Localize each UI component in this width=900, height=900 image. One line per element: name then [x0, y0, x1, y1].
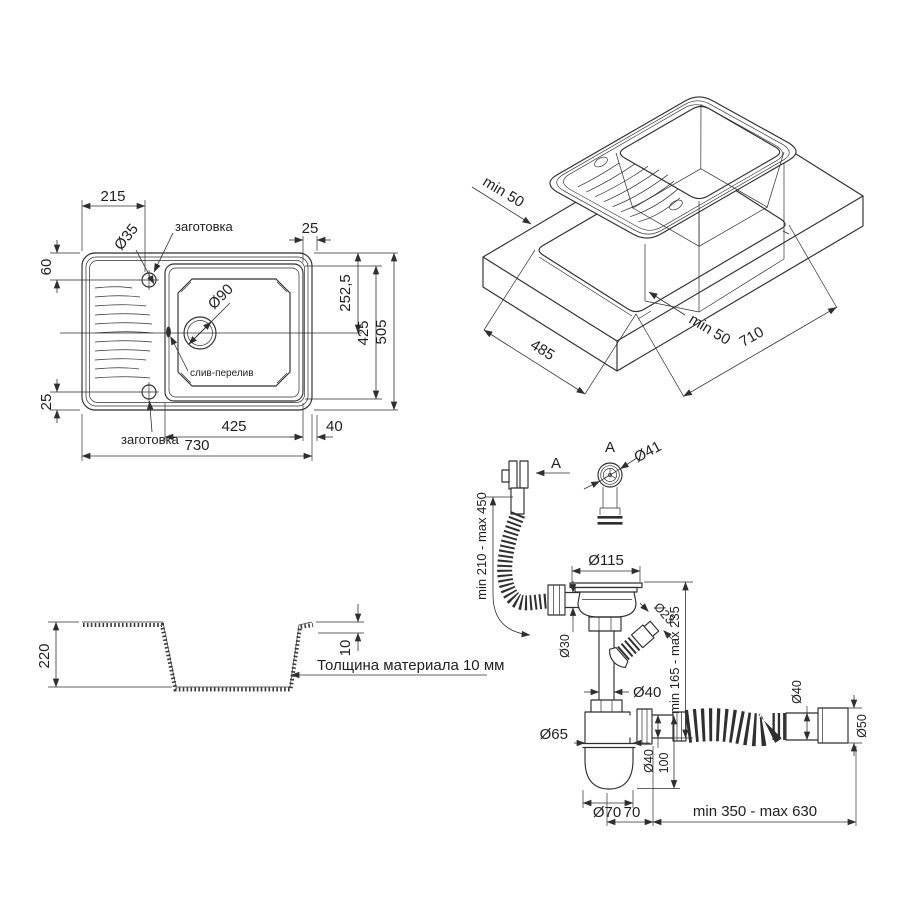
section-a-label: A: [551, 455, 561, 472]
sink-body: [550, 97, 796, 246]
dim-25-top-label: 25: [302, 220, 319, 237]
section-profile: [82, 622, 313, 690]
section-view: 220 10 Толщина материала 10 мм: [36, 604, 504, 690]
dim-overflow-hose-label: min 210 - max 450: [474, 492, 489, 600]
dim-25-left-label: 25: [38, 394, 55, 411]
section-dimensions: 220 10 Толщина материала 10 мм: [36, 604, 504, 687]
dim-505-label: 505: [373, 319, 390, 344]
blank-bottom-label: заготовка: [121, 432, 180, 447]
blank-top-label: заготовка: [175, 219, 234, 234]
top-view: 60 25 215 25 252,5 425 505 425: [38, 188, 398, 461]
detail-a: A Ø41: [584, 438, 664, 528]
dim-o40-outlet-label: Ø40: [642, 749, 656, 773]
dim-o35-label: Ø35: [111, 221, 142, 254]
dim-730-label: 730: [184, 437, 209, 454]
dim-o115-label: Ø115: [588, 552, 624, 569]
dim-60-label: 60: [38, 259, 55, 276]
section-note-label: Толщина материала 10 мм: [317, 657, 504, 674]
dim-o50-label: Ø50: [855, 714, 869, 738]
drawing-page: 60 25 215 25 252,5 425 505 425: [0, 0, 900, 900]
siphon-view: A min 210 - max 450 A Ø41: [474, 438, 869, 826]
siphon-bottle: [583, 700, 635, 789]
drain-flange: [570, 583, 642, 631]
dim-o90-label: Ø90: [205, 281, 237, 313]
dim-o65-label: Ø65: [540, 726, 568, 743]
detail-a-label: A: [605, 439, 615, 456]
dim-215-label: 215: [100, 188, 125, 205]
dim-outlet-hose-label: min 350 - max 630: [693, 803, 817, 820]
dim-o40-pipe-label: Ø40: [633, 684, 661, 701]
dim-40-label: 40: [326, 418, 343, 435]
dim-o41-label: Ø41: [631, 438, 664, 466]
dim-o40-hose-label: Ø40: [790, 680, 804, 704]
dim-252-label: 252,5: [337, 274, 354, 312]
top-view-dimensions: 60 25 215 25 252,5 425 505 425: [38, 188, 398, 461]
dim-220-label: 220: [36, 643, 53, 668]
dim-710-label: 710: [737, 323, 767, 350]
dim-425-side-label: 425: [355, 320, 372, 345]
overflow-head: [502, 461, 528, 514]
vertical-pipe: [599, 631, 614, 700]
dim-10-label: 10: [337, 640, 354, 657]
overflow-slot: [166, 327, 171, 338]
overflow-inlet: [548, 585, 579, 615]
dim-70-label: 70: [624, 804, 641, 821]
outlet-hose: [687, 725, 770, 730]
sink-outline: [60, 253, 362, 410]
dim-min50-left-label: min 50: [480, 173, 527, 211]
overflow-note-label: слив-перелив: [190, 368, 254, 379]
technical-drawing: 60 25 215 25 252,5 425 505 425: [0, 0, 900, 900]
dim-height-label: min 165 - max 235: [667, 606, 682, 714]
dim-o30-label: Ø30: [558, 634, 572, 658]
overflow-hose: [505, 514, 547, 603]
dim-425-bottom-label: 425: [221, 418, 246, 435]
iso-view: min 50 485 710 min 50: [472, 97, 863, 397]
dim-100-label: 100: [657, 753, 671, 774]
drainboard-ribs: [95, 287, 153, 378]
